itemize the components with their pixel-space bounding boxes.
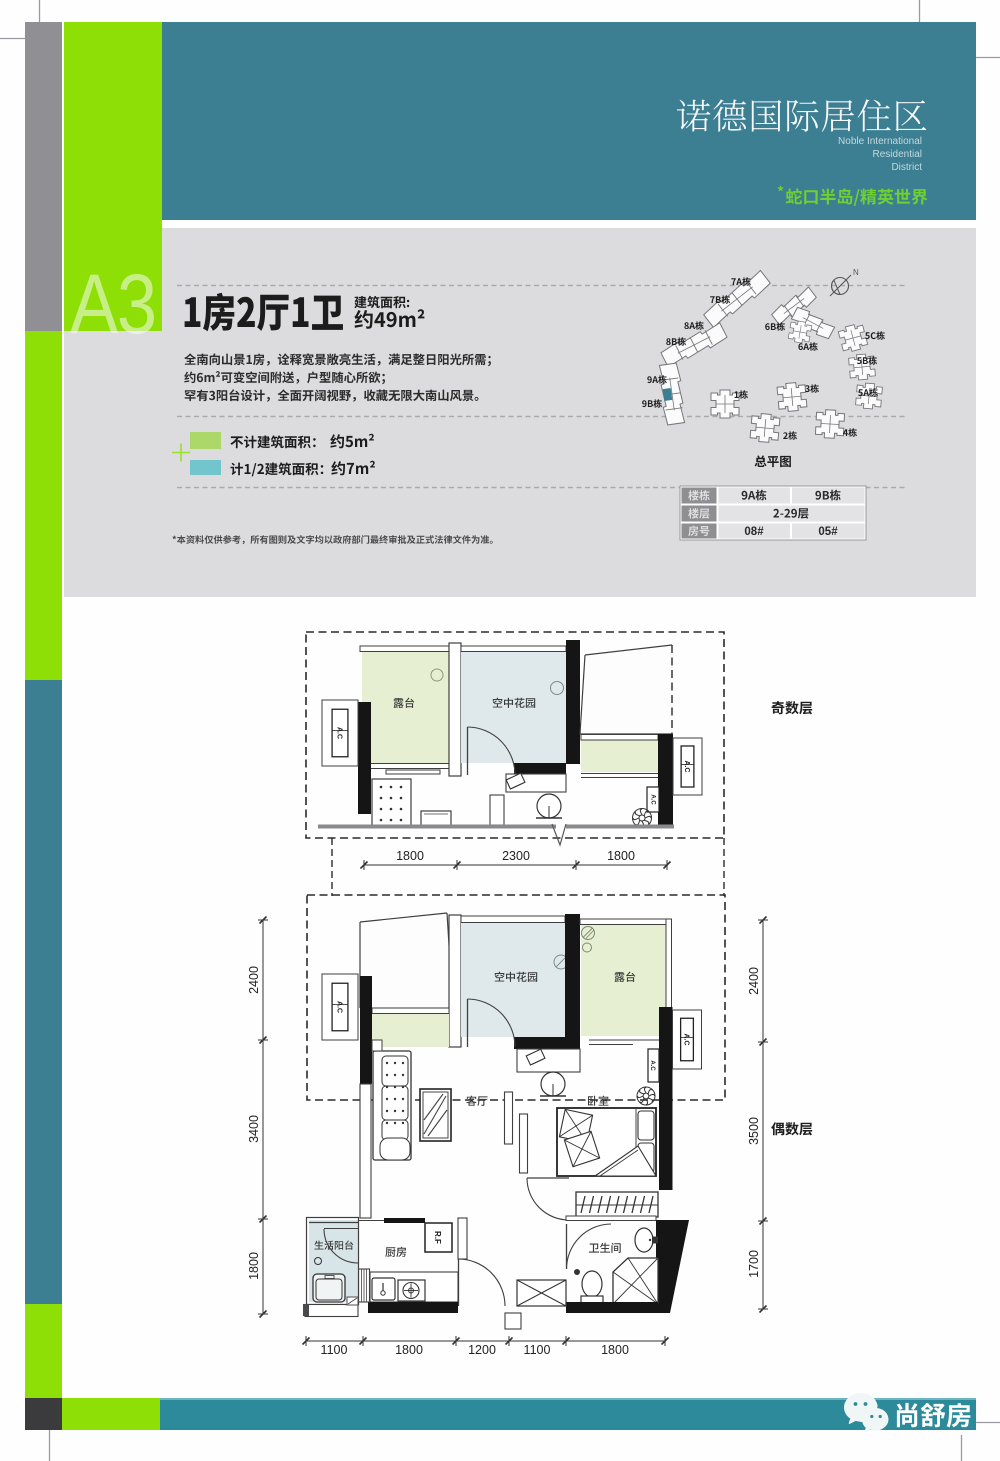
svg-text:1800: 1800: [607, 849, 635, 863]
svg-text:A.C: A.C: [650, 794, 656, 805]
svg-text:05#: 05#: [818, 526, 838, 538]
svg-text:R.F: R.F: [433, 1231, 442, 1244]
svg-text:Noble International: Noble International: [838, 136, 922, 147]
svg-text:A.C: A.C: [649, 1060, 655, 1071]
svg-text:N: N: [853, 268, 859, 277]
svg-text:A.C: A.C: [335, 1001, 342, 1013]
svg-text:3400: 3400: [247, 1115, 261, 1143]
svg-text:1800: 1800: [247, 1252, 261, 1280]
svg-text:1800: 1800: [396, 849, 424, 863]
svg-text:A.C: A.C: [335, 727, 342, 739]
svg-text:District: District: [891, 162, 922, 173]
svg-text:08#: 08#: [744, 526, 764, 538]
svg-text:A.C: A.C: [682, 1033, 689, 1045]
svg-text:1800: 1800: [601, 1343, 629, 1357]
svg-text:2400: 2400: [247, 966, 261, 994]
svg-text:A.C: A.C: [683, 760, 690, 772]
svg-text:2400: 2400: [747, 967, 761, 995]
svg-text:1700: 1700: [747, 1250, 761, 1278]
svg-text:1100: 1100: [321, 1343, 348, 1357]
svg-text:3500: 3500: [747, 1117, 761, 1145]
svg-text:Residential: Residential: [873, 149, 922, 160]
svg-text:2300: 2300: [502, 849, 530, 863]
svg-text:1800: 1800: [395, 1343, 423, 1357]
svg-text:A3: A3: [70, 257, 156, 351]
svg-text:1200: 1200: [468, 1343, 496, 1357]
svg-text:1100: 1100: [524, 1343, 551, 1357]
